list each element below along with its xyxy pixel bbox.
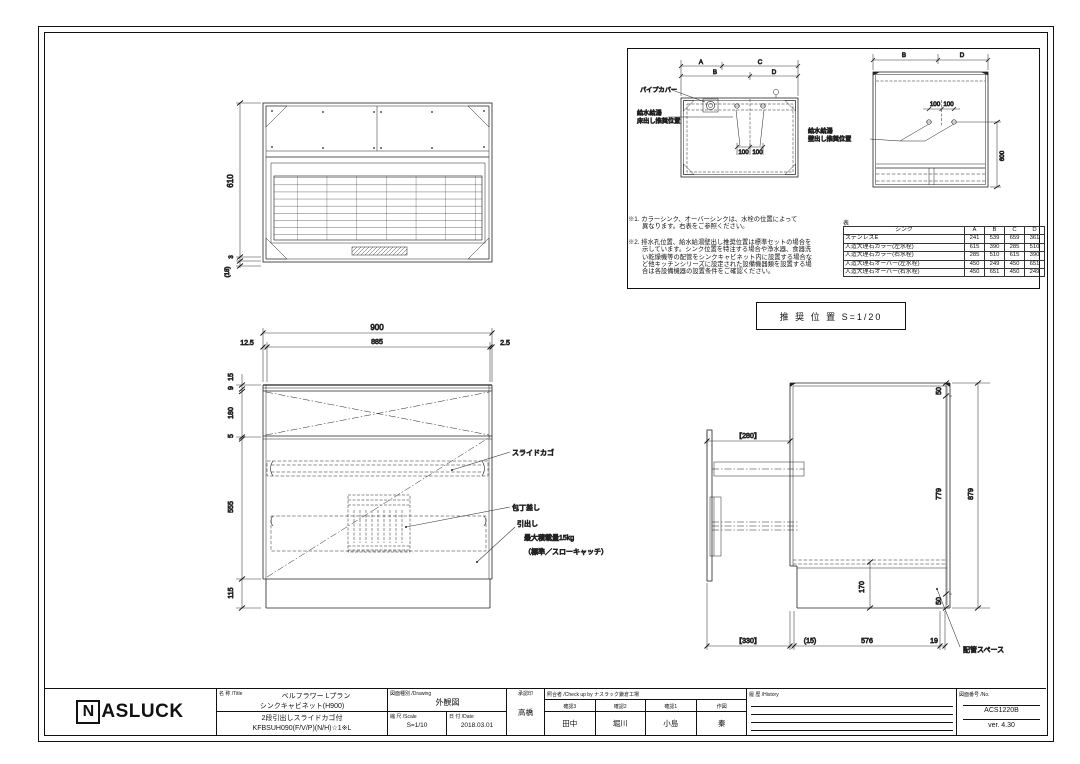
approval-name: 高橋: [507, 707, 544, 718]
dim-2-5: 2.5: [500, 340, 510, 347]
side-view: [705, 381, 991, 651]
check2-header-cell: 確認2: [596, 700, 647, 712]
dim-A: A: [699, 59, 704, 66]
check3-header-cell: 確認3: [545, 700, 596, 712]
scale-header: 縮 尺 /Scale: [390, 713, 417, 720]
col-d: D: [1025, 227, 1045, 235]
plan-view: [236, 101, 492, 269]
history-line: [751, 706, 953, 707]
note-1: ※1. カラーシンク、オーバーシンクは、水栓の位置によって 異なります。右表をご…: [628, 216, 797, 231]
title-divider: [217, 711, 388, 712]
draw-header-cell: 作図: [697, 700, 748, 712]
label-drawer: 引出し: [517, 519, 538, 528]
dim-555: 555: [228, 501, 235, 513]
dim-wall-100-right: 100: [943, 101, 954, 108]
date-header: 日 付 /Date: [449, 713, 474, 720]
dim-wall-D: D: [960, 52, 965, 59]
note1-line2: 異なります。右表をご参照ください。: [628, 223, 797, 230]
drawing-sheet: 610 3 (18): [0, 0, 1080, 764]
check2-name: 堀川: [596, 712, 647, 735]
dim-879: 879: [968, 488, 975, 500]
nasluck-logo: N ASLUCK: [44, 689, 216, 735]
dim-9: 9: [228, 386, 235, 390]
approval-cell: 承認印 高橋: [507, 689, 545, 735]
title-line1: ベルフラワー Lプラン: [217, 691, 387, 701]
front-leaders: [406, 452, 515, 562]
title-line2: シンクキャビネット(H900): [217, 701, 387, 711]
dim-5: 5: [228, 434, 235, 438]
check-header-cell: 照合者 /Check up by ナスラック鎌倉工場: [545, 689, 747, 700]
drawer-outline: [271, 516, 486, 551]
table-row: 人造大理石オーバー(左水栓) 450 249 450 651: [844, 260, 1045, 268]
history-line: [751, 730, 953, 731]
dim-885: 885: [371, 339, 383, 346]
drawing-canvas: 610 3 (18): [0, 0, 1080, 764]
dim-D: D: [772, 69, 777, 76]
dim-280: 【280】: [735, 432, 761, 440]
history-line: [751, 714, 953, 715]
dim-330: 【330】: [735, 637, 761, 645]
drawing-header: 図面種別 /Drawing: [390, 690, 431, 697]
title-line4: KFBSUH090(F/V/P)(N/H)☆1※L: [217, 724, 387, 732]
col-c: C: [1005, 227, 1025, 235]
draw-name: 秦: [697, 712, 748, 735]
front-left-dims: [236, 374, 261, 608]
history-line: [751, 722, 953, 723]
dim-15: 15: [228, 373, 235, 381]
dim-115: 115: [228, 587, 235, 598]
number-rule-top: [963, 705, 1040, 706]
dim-C: C: [758, 59, 763, 66]
front-top-dims: [263, 328, 492, 382]
check1-name: 小島: [646, 712, 697, 735]
label-knife-holder: 包丁差し: [512, 503, 540, 512]
label-supply-floor-2: 床出し推奨位置: [637, 117, 680, 125]
note2-line3: い乾燥機等の配管をシンクキャビネット内に設置する場合な: [628, 254, 812, 261]
dim-100-right: 100: [752, 149, 763, 156]
title-block: N ASLUCK 名 称 /Title ベルフラワー Lプラン シンクキャビネッ…: [44, 688, 1046, 734]
check3-name: 田中: [545, 712, 596, 735]
dim-wall-100-left: 100: [930, 101, 941, 108]
table-row: 人造大理石カラー(右水栓) 285 510 615 390: [844, 252, 1045, 260]
drawing-number: ACS1220B: [957, 707, 1046, 714]
plan-dims: [236, 103, 261, 268]
check-header: 照合者 /Check up by ナスラック鎌倉工場: [547, 691, 639, 698]
col-a: A: [965, 227, 985, 235]
number-cell: 図面番号 /No. ACS1220B ver. 4.30: [957, 689, 1046, 735]
table-row: ステンレスE 241 539 659 361: [844, 235, 1045, 243]
dim-100-left: 100: [738, 149, 749, 156]
table-header-row: シンク A B C D: [844, 227, 1045, 235]
dim-15b: (15): [804, 638, 816, 645]
label-supply-floor-1: 給水給湯: [637, 109, 662, 117]
dim-12-5: 12.5: [240, 340, 254, 347]
logo-text: ASLUCK: [101, 701, 183, 723]
dim-B: B: [713, 69, 717, 76]
dim-top50: 50: [936, 387, 943, 395]
note2-line5: 合は各設備機器の設置条件をご確認ください。: [628, 268, 812, 275]
front-view: [236, 328, 515, 611]
detail-wall-view: [870, 54, 1001, 189]
dim-18: (18): [224, 266, 231, 277]
label-pipe-cover: パイプカバー: [640, 87, 677, 94]
note2-line2: 示しています。シンク位置を特注する場合や浄水器、食器洗: [628, 246, 812, 253]
label-supply-wall-2: 壁出し推奨位置: [808, 135, 851, 143]
date-value: 2018.03.01: [447, 722, 507, 729]
recommended-position-label: 推 奨 位 置 S=1/20: [756, 302, 906, 330]
logo-n-icon: N: [76, 700, 100, 724]
label-slide-basket: スライドカゴ: [512, 448, 554, 457]
check1-header-cell: 確認1: [646, 700, 697, 712]
logo-cell: N ASLUCK: [44, 689, 217, 735]
note-2: ※2. 排水孔位置、給水給湯壁出し推奨位置は標準セットの場合を 示しています。シ…: [628, 239, 812, 275]
dim-bottom50: 50: [936, 597, 943, 605]
dim-170: 170: [859, 581, 866, 593]
history-header: 履 歴 /History: [749, 691, 779, 698]
scale-value: S=1/10: [388, 722, 446, 729]
slide-basket: [267, 461, 488, 476]
table-row: 人造大理石オーバー(右水栓) 450 651 450 249: [844, 269, 1045, 277]
dim-3: 3: [228, 255, 235, 259]
title-cell: 名 称 /Title ベルフラワー Lプラン シンクキャビネット(H900) 2…: [217, 689, 388, 735]
drawer-panel: [707, 430, 712, 581]
check-group-cell: 照合者 /Check up by ナスラック鎌倉工場 確認3 確認2 確認1 作…: [545, 689, 747, 735]
dim-19: 19: [930, 638, 938, 645]
dim-600: 600: [999, 150, 1006, 161]
approval-header: 承認印: [507, 690, 544, 697]
label-catch: （標準／スローキャッチ）: [524, 547, 608, 556]
number-header: 図面番号 /No.: [959, 691, 990, 698]
history-cell: 履 歴 /History: [747, 689, 957, 735]
side-dims: [707, 383, 990, 650]
label-max-load: 最大積載量15kg: [524, 533, 574, 542]
col-b: B: [985, 227, 1005, 235]
dim-576: 576: [861, 638, 873, 645]
drawing-type-cell: 図面種別 /Drawing 外観図: [388, 689, 507, 712]
drawing-cell: 図面種別 /Drawing 外観図 縮 尺 /Scale S=1/10 日 付 …: [388, 689, 507, 735]
drawing-type: 外観図: [388, 697, 507, 708]
number-rule-bottom: [963, 719, 1040, 720]
dim-610: 610: [226, 174, 235, 188]
label-pipe-space: 配管スペース: [963, 645, 1004, 654]
vent-hatch: [352, 247, 407, 255]
table-row: 人造大理石カラー(左水栓) 615 390 285 510: [844, 243, 1045, 251]
screw-dots: [271, 110, 485, 149]
dim-180: 180: [228, 407, 235, 419]
dim-wall-B: B: [902, 52, 906, 59]
sink-cross: [266, 392, 489, 435]
detail-floor-view: [668, 60, 800, 177]
title-line3: 2段引出しスライドカゴ付: [217, 713, 387, 723]
col-sink: シンク: [844, 227, 965, 235]
drain-symbol: [773, 89, 778, 94]
wire-grid: [274, 176, 482, 240]
label-supply-wall-1: 給水給湯: [808, 127, 833, 135]
dim-900: 900: [370, 323, 384, 332]
knife-holder: [348, 495, 410, 552]
version: ver. 4.30: [957, 722, 1046, 729]
sink-table: シンク A B C D ステンレスE 241 539 659 361 人造大理石…: [843, 226, 1045, 277]
date-cell: 日 付 /Date 2018.03.01: [447, 712, 507, 735]
dim-779: 779: [936, 488, 943, 500]
scale-cell: 縮 尺 /Scale S=1/10: [388, 712, 447, 735]
